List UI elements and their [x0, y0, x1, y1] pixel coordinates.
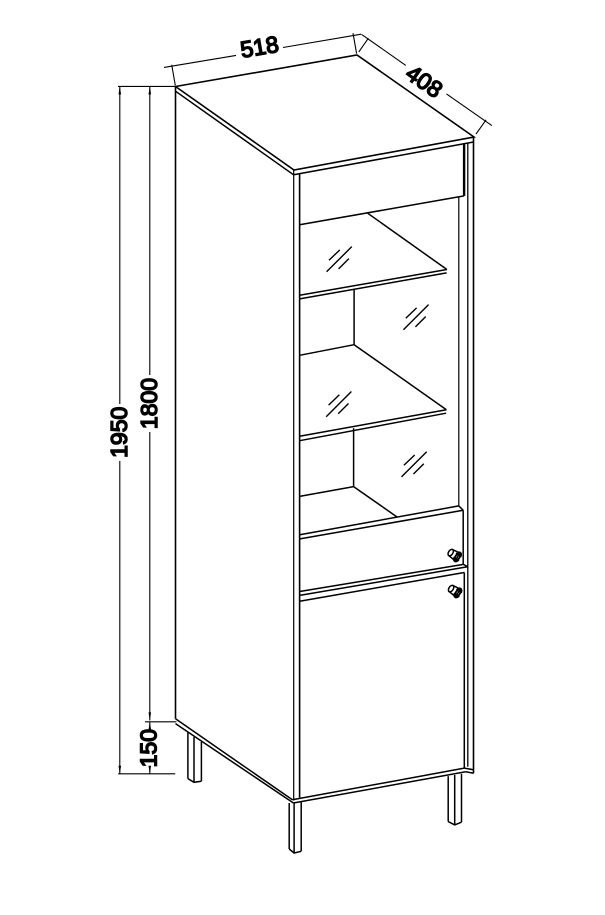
- svg-text:1800: 1800: [136, 378, 162, 429]
- svg-text:150: 150: [135, 729, 161, 767]
- svg-text:1950: 1950: [106, 407, 132, 458]
